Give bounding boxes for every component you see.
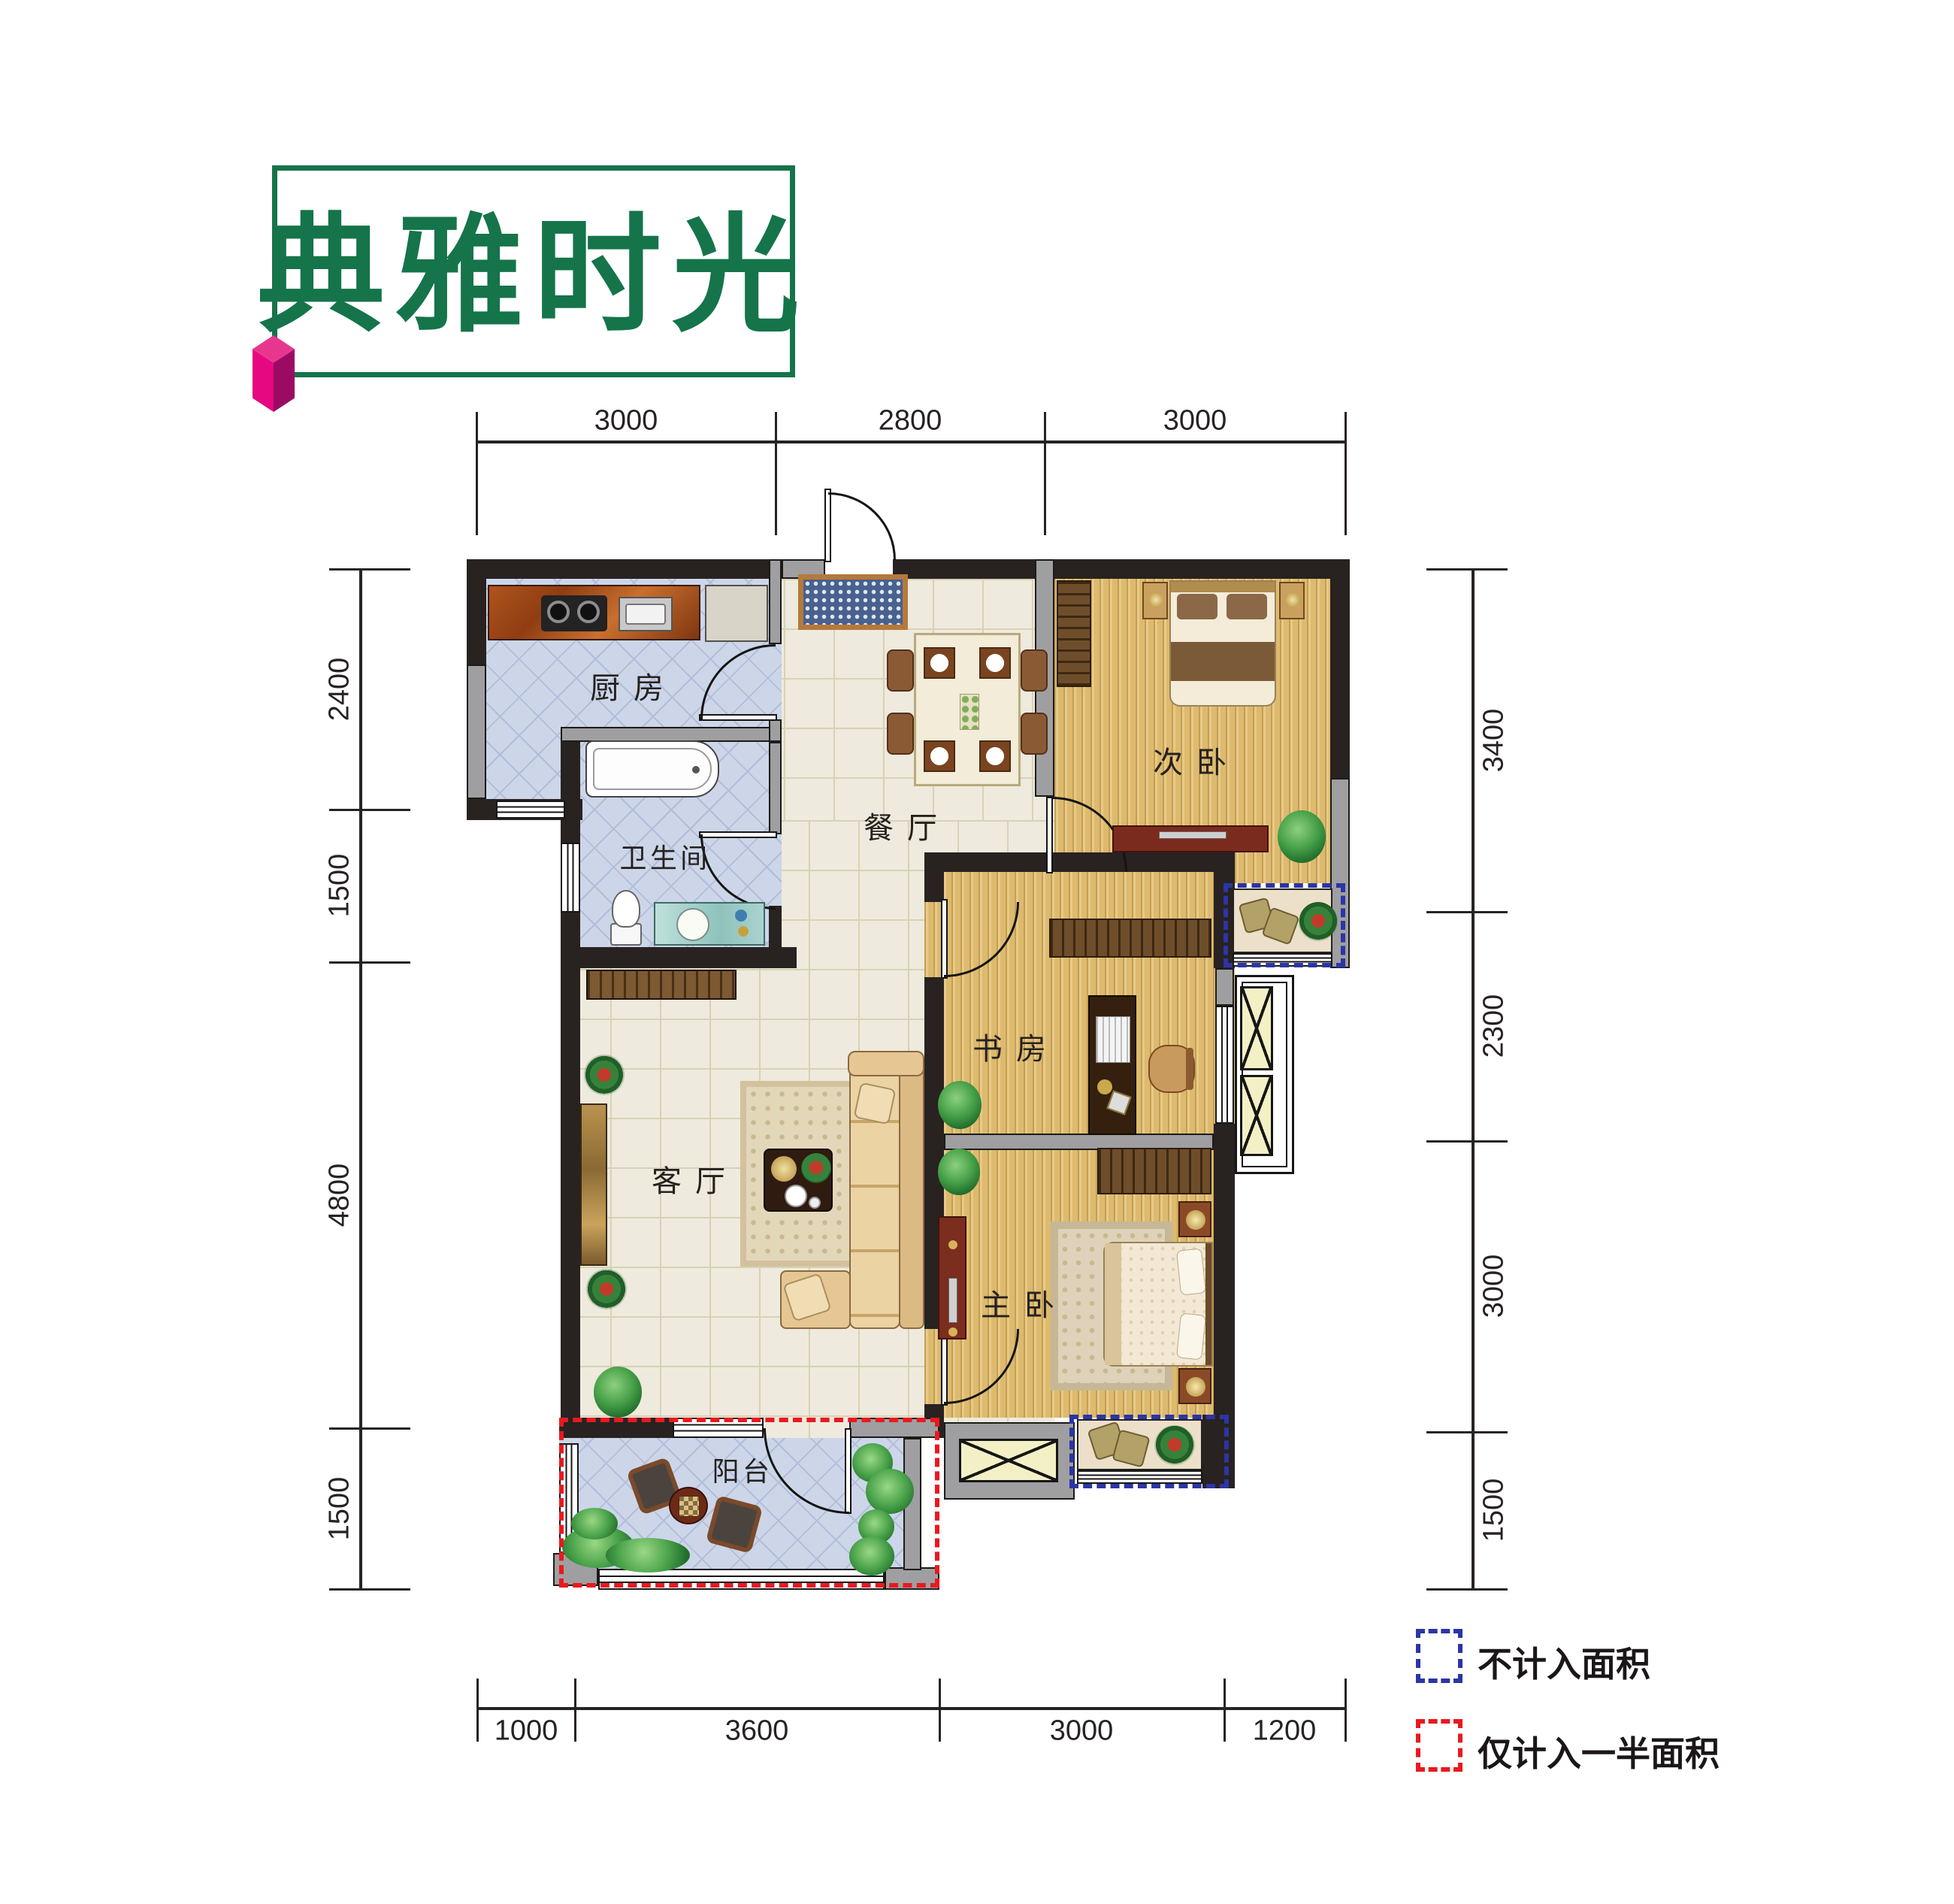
dim-tick: [1426, 1140, 1508, 1143]
wall-lift-lobby: [1215, 968, 1234, 1006]
stove-burner: [577, 601, 600, 623]
dim-label: 2800: [879, 405, 942, 437]
dim-label: 1500: [324, 854, 356, 918]
dim-tick: [329, 809, 410, 811]
bathtub-icon: [585, 740, 719, 798]
desk-item: [1097, 1079, 1112, 1094]
bed-pillow: [1176, 1312, 1206, 1360]
dim-tick: [1426, 1431, 1508, 1433]
kitchen-sink-icon: [619, 597, 673, 631]
cup-icon: [809, 1197, 821, 1209]
balcony-duct: [959, 1439, 1058, 1482]
room-label-living: 客厅: [652, 1157, 739, 1200]
bed-foot-band: [1105, 1243, 1121, 1365]
shoe-cabinet: [586, 970, 737, 1000]
wall-kitchen-right-cap: [769, 719, 782, 742]
desk-laptop: [1096, 1016, 1130, 1063]
dim-label: 3600: [725, 1715, 789, 1748]
lamp-icon: [1148, 592, 1163, 607]
vanity-basin: [676, 908, 709, 941]
place-setting: [979, 740, 1011, 772]
dresser-knob: [948, 1327, 957, 1336]
dining-chair: [1021, 713, 1048, 755]
entry-door-arc: [828, 492, 896, 560]
lamp-icon: [1186, 1210, 1205, 1230]
wall-right-ext-upper: [1330, 559, 1350, 778]
bathtub-drain: [692, 766, 700, 773]
bed-pillow: [1177, 594, 1217, 619]
dim-label: 3000: [1478, 1255, 1511, 1318]
nightstand: [1142, 582, 1168, 619]
wall-living-left: [561, 968, 580, 1438]
legend-half-area-swatch: [1416, 1719, 1462, 1772]
dim-tick: [1044, 412, 1046, 535]
room-label-balcony: 阳台: [712, 1450, 773, 1489]
lamp-icon: [1186, 1377, 1205, 1397]
dining-chair: [887, 713, 914, 755]
kitchen-window: [496, 801, 565, 819]
place-setting: [924, 740, 955, 772]
wall-kitchen-bath-divider: [561, 727, 782, 742]
lamp-icon: [1285, 592, 1300, 607]
logo-cube-icon: [253, 335, 295, 412]
fridge-icon: [705, 585, 768, 642]
dim-tick: [939, 1678, 941, 1742]
bedroom2-bed: [1169, 580, 1276, 707]
title-box: 典雅时光: [272, 165, 795, 377]
master-bed: [1103, 1242, 1213, 1367]
toilet-icon: [612, 890, 640, 928]
nightstand: [1279, 582, 1305, 619]
dim-label: 1500: [1478, 1479, 1511, 1542]
dim-tick: [574, 1678, 576, 1742]
bedroom2-dresser: [1112, 825, 1269, 852]
tv-cabinet: [580, 1103, 607, 1266]
room-label-bedroom2: 次卧: [1153, 738, 1240, 782]
nightstand: [1178, 1201, 1211, 1237]
dim-tick: [329, 1427, 410, 1430]
room-label-kitchen: 厨房: [590, 664, 677, 707]
dim-line-bottom: [477, 1707, 1345, 1710]
table-centerpiece: [960, 694, 979, 730]
room-label-master: 主卧: [981, 1281, 1068, 1324]
dresser-knob: [948, 1240, 957, 1249]
table-flowers-icon: [801, 1153, 831, 1183]
dim-label: 3000: [594, 405, 658, 437]
sink-basin: [625, 604, 666, 625]
bathroom-vanity: [654, 902, 765, 946]
dim-line-left: [359, 569, 362, 1589]
dim-tick: [476, 1678, 479, 1742]
master-bay-excluded-outline: [1069, 1415, 1229, 1488]
dim-tick: [1345, 412, 1347, 535]
wall-bath-left-upper: [561, 727, 580, 843]
legend-excluded-label: 不计入面积: [1478, 1637, 1650, 1687]
dim-tick: [1426, 1588, 1508, 1591]
sofa-armrest: [848, 1051, 924, 1076]
bed-pillow: [1227, 594, 1267, 619]
plant-icon: [594, 1367, 642, 1418]
plant-icon: [1278, 810, 1326, 863]
sofa-pillow: [854, 1082, 897, 1125]
wall-top-left: [467, 559, 782, 579]
dim-line-right: [1472, 569, 1475, 1589]
vanity-accessory: [738, 926, 749, 937]
dim-label: 1200: [1253, 1715, 1317, 1748]
bed-headboard: [1205, 1243, 1211, 1365]
coffee-table: [764, 1149, 833, 1212]
legend-half-area-label: 仅计入一半面积: [1478, 1727, 1720, 1776]
flower-pot-icon: [583, 1054, 625, 1097]
wall-bath-right-upper: [769, 742, 782, 834]
dim-tick: [329, 961, 410, 964]
dim-tick: [1426, 911, 1508, 913]
bedroom2-wardrobe: [1057, 580, 1091, 687]
dresser-mirror: [948, 1278, 957, 1323]
dim-line-top: [476, 440, 1345, 443]
wall-bath-bottom: [561, 947, 797, 968]
study-window: [1215, 1006, 1234, 1124]
sofa-back: [899, 1057, 924, 1329]
dining-table: [914, 633, 1021, 786]
dining-chair: [887, 649, 914, 692]
wall-kitchen-right-upper: [769, 559, 782, 644]
master-wardrobe: [1097, 1148, 1211, 1194]
plant-icon: [938, 1149, 980, 1195]
dim-label: 3000: [1050, 1715, 1114, 1748]
dim-tick: [329, 1588, 410, 1591]
dining-chair: [1021, 649, 1048, 692]
plate-icon: [785, 1185, 807, 1207]
dim-label: 4800: [324, 1164, 356, 1227]
dim-label: 3400: [1478, 709, 1511, 773]
place-setting: [924, 647, 955, 679]
wall-left-mid: [467, 664, 486, 799]
dim-tick: [1426, 568, 1508, 571]
place-setting: [979, 647, 1011, 679]
bedroom2-bay-excluded-outline: [1224, 883, 1345, 967]
bathroom-window: [561, 843, 580, 913]
lift-duct-lower: [1240, 1075, 1273, 1156]
stove-icon: [541, 595, 607, 631]
study-desk: [1088, 995, 1136, 1135]
vanity-accessory: [735, 910, 747, 922]
dim-label: 2300: [1478, 994, 1511, 1058]
room-label-study: 书房: [972, 1025, 1060, 1068]
study-chair: [1148, 1045, 1195, 1093]
room-label-bathroom: 卫生间: [620, 837, 711, 876]
bed-pillow: [1176, 1248, 1206, 1295]
master-dresser: [938, 1216, 966, 1339]
wall-left-upper: [467, 559, 486, 664]
balcony-half-area-outline: [559, 1418, 939, 1588]
dresser-mirror: [1159, 831, 1227, 839]
study-wardrobe: [1049, 919, 1211, 958]
desk-item: [1106, 1090, 1131, 1115]
chair-back: [1186, 1048, 1193, 1090]
dim-label: 1000: [495, 1715, 558, 1748]
dim-tick: [1224, 1678, 1226, 1742]
dim-label: 2400: [324, 658, 356, 722]
floor-plan-page: 典雅时光: [0, 0, 1954, 1904]
entry-rug: [798, 574, 908, 630]
bed-blanket: [1171, 642, 1275, 681]
dim-tick: [1345, 1678, 1347, 1742]
tray-icon: [771, 1156, 797, 1182]
dim-tick: [476, 412, 478, 535]
dim-label: 3000: [1163, 405, 1227, 437]
plant-icon: [938, 1081, 982, 1129]
dim-label: 1500: [324, 1477, 356, 1541]
wall-hall-study-upper: [924, 852, 944, 902]
legend-excluded-swatch: [1416, 1629, 1462, 1683]
page-title: 典雅时光: [257, 171, 810, 356]
nightstand: [1178, 1368, 1211, 1404]
dim-tick: [329, 568, 410, 571]
dim-tick: [775, 412, 777, 535]
stove-burner: [547, 601, 570, 623]
wall-top-right: [893, 559, 1350, 579]
bed-headboard: [1171, 582, 1275, 592]
flower-pot-icon: [585, 1267, 628, 1312]
room-label-dining: 餐厅: [864, 804, 951, 847]
lift-duct-upper: [1240, 986, 1273, 1070]
